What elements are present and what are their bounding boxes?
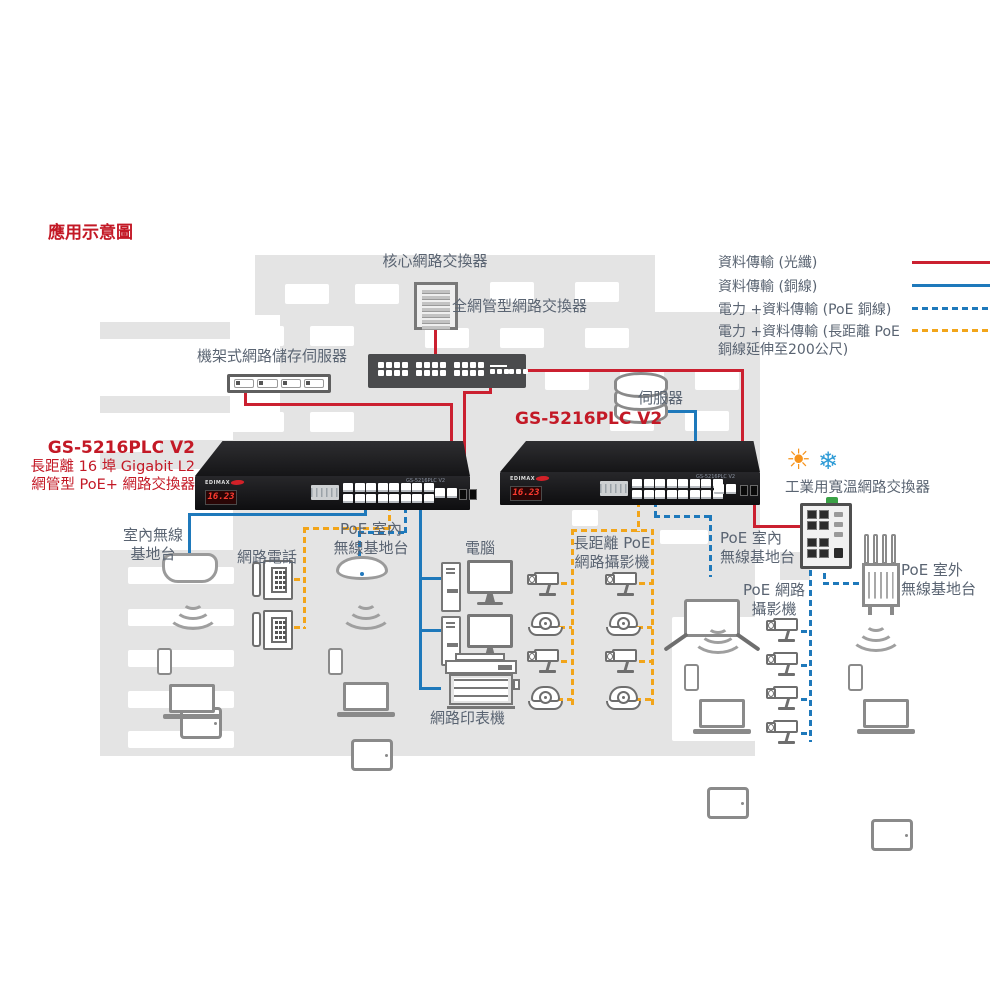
desktop-pc-icon [441,560,517,614]
building-window [285,284,329,304]
model-tag: GS-5216PLC V2 [406,478,445,484]
industrial-switch-icon [800,503,852,569]
smartphone-icon [848,664,863,691]
tablet-icon [351,739,393,771]
core-switch-label: 核心網路交換器 [370,252,500,271]
smartphone-icon [328,648,343,675]
managed-switch-icon [368,354,526,388]
bullet-camera-icon [527,571,565,599]
building-window [240,326,284,346]
line-cam-box-top [571,529,653,532]
bullet-camera-icon [605,648,643,676]
laptop-icon [857,699,915,735]
line-core-to-managed [434,328,437,356]
bullet-camera-icon [527,648,565,676]
bullet-camera-icon [605,571,643,599]
line-pc1-branch [421,577,443,580]
gs2-model-label: GS-5216PLC V2 [515,409,662,430]
tablet-icon [707,787,749,819]
tablet-icon [871,819,913,851]
legend-line-solid-red [912,261,990,264]
poe-cam-label: PoE 網路 攝影機 [738,581,810,619]
line-phone1-conn [294,578,305,581]
long-reach-cam-label: 長距離 PoE 網路攝影機 [570,534,654,572]
gs1-switch-icon-front: EDIMAX16.23GS-5216PLC V2 [195,476,470,510]
dome-camera-icon [606,686,642,714]
building-window [425,328,469,348]
industrial-switch-label: 工業用寬溫網路交換器 [785,479,930,497]
building-window [355,284,399,304]
indoor-ap-label: 室內無線 基地台 [113,526,193,564]
edimax-swoosh [230,480,245,485]
poe-indoor-ap-left-label: PoE 室內 無線基地台 [325,520,417,558]
wifi-waves-icon [336,592,390,626]
dip-panel [311,485,339,500]
legend-label-longreach: 電力 +資料傳輸 (長距離 PoE 銅線延伸至200公尺) [718,323,904,359]
sfp-ports [740,485,758,496]
gs2-switch-icon-front: EDIMAX16.23GS-5216PLC V2 [500,472,760,505]
line-managed-elbow [463,391,492,394]
ip-phone-label: 網路電話 [237,548,297,567]
building-window [572,510,598,526]
building-shape [100,396,230,413]
wifi-waves-icon [846,614,900,648]
line-industrial-outdoor-run [823,582,864,585]
server-label: 伺服器 [638,389,683,408]
dome-camera-icon [528,612,564,640]
line-gs2-to-industrial [753,525,805,528]
managed-switch-label: 全網管型網路交換器 [452,297,587,316]
legend-line-dashed-orange [912,329,990,332]
nas-icon [227,374,331,393]
laptop-icon [693,699,751,735]
laptop-icon [163,684,221,720]
rj45-port-block [632,479,723,499]
ip-phone-icon [252,610,294,650]
poe-led-display: 16.23 [205,490,237,505]
rj45-port-block [343,483,434,503]
sun-icon: ☀ [786,446,811,474]
outdoor-ap-icon [860,534,904,618]
building-window [660,530,708,544]
building-window [685,411,729,431]
legend-label-copper: 資料傳輸 (銅線) [718,278,908,296]
building-window [585,328,629,348]
building-window [500,328,544,348]
legend-label-poe: 電力 +資料傳輸 (PoE 銅線) [718,301,918,319]
printer-label: 網路印表機 [430,709,505,728]
dome-camera-icon [528,686,564,714]
edimax-logo: EDIMAX [510,476,535,482]
smartphone-icon [684,664,699,691]
legend-line-solid-blue [912,284,990,287]
poe-indoor-ap-right-label: PoE 室內 無線基地台 [720,529,795,567]
model-tag: GS-5216PLC V2 [696,474,735,480]
building-window [545,370,589,390]
bullet-camera-icon [766,685,804,713]
building-window [240,412,284,432]
smartphone-icon [157,648,172,675]
bullet-camera-icon [766,719,804,747]
gs2-switch-icon-top [500,441,760,472]
uplink-ports [435,488,457,498]
wifi-waves-icon [688,616,742,650]
gs1-switch-icon-top [195,441,470,476]
building-shape [100,322,230,339]
printer-icon [437,653,525,713]
building-window [128,650,234,667]
building-window [310,412,354,432]
building-window [310,326,354,346]
line-gs1-pc-bus [419,505,422,690]
computer-label: 電腦 [465,539,495,558]
line-gs2-cam-stub [637,501,640,532]
building-window [695,370,739,390]
application-diagram: 應用示意圖 資料傳輸 (光纖) 資料傳輸 (銅線) 電力 +資料傳輸 (PoE … [0,0,1000,1000]
edimax-logo: EDIMAX [205,480,230,486]
line-pc2-branch [421,629,443,632]
wifi-waves-icon [163,592,217,626]
bullet-camera-icon [766,651,804,679]
laptop-icon [337,682,395,718]
outdoor-ap-label: PoE 室外 無線基地台 [901,561,976,599]
edimax-swoosh [535,476,550,481]
line-gs1-ap-run [188,513,367,516]
legend-label-fiber: 資料傳輸 (光纖) [718,254,908,272]
poe-indoor-ap-left-icon [336,556,388,580]
sfp-ports [459,489,477,500]
line-nas-run [244,403,453,406]
poe-led-display: 16.23 [510,486,542,501]
nas-label: 機架式網路儲存伺服器 [197,347,347,366]
bullet-camera-icon [766,617,804,645]
snowflake-icon: ❄ [818,449,838,473]
uplink-ports [714,484,736,494]
line-gs2-ap-run [654,515,712,518]
dome-camera-icon [606,612,642,640]
line-phone2-conn [294,626,305,629]
legend-line-dashed-blue [912,307,990,310]
line-gs2-ap-drop [709,515,712,577]
dip-panel [600,481,628,496]
diagram-title: 應用示意圖 [48,218,133,243]
